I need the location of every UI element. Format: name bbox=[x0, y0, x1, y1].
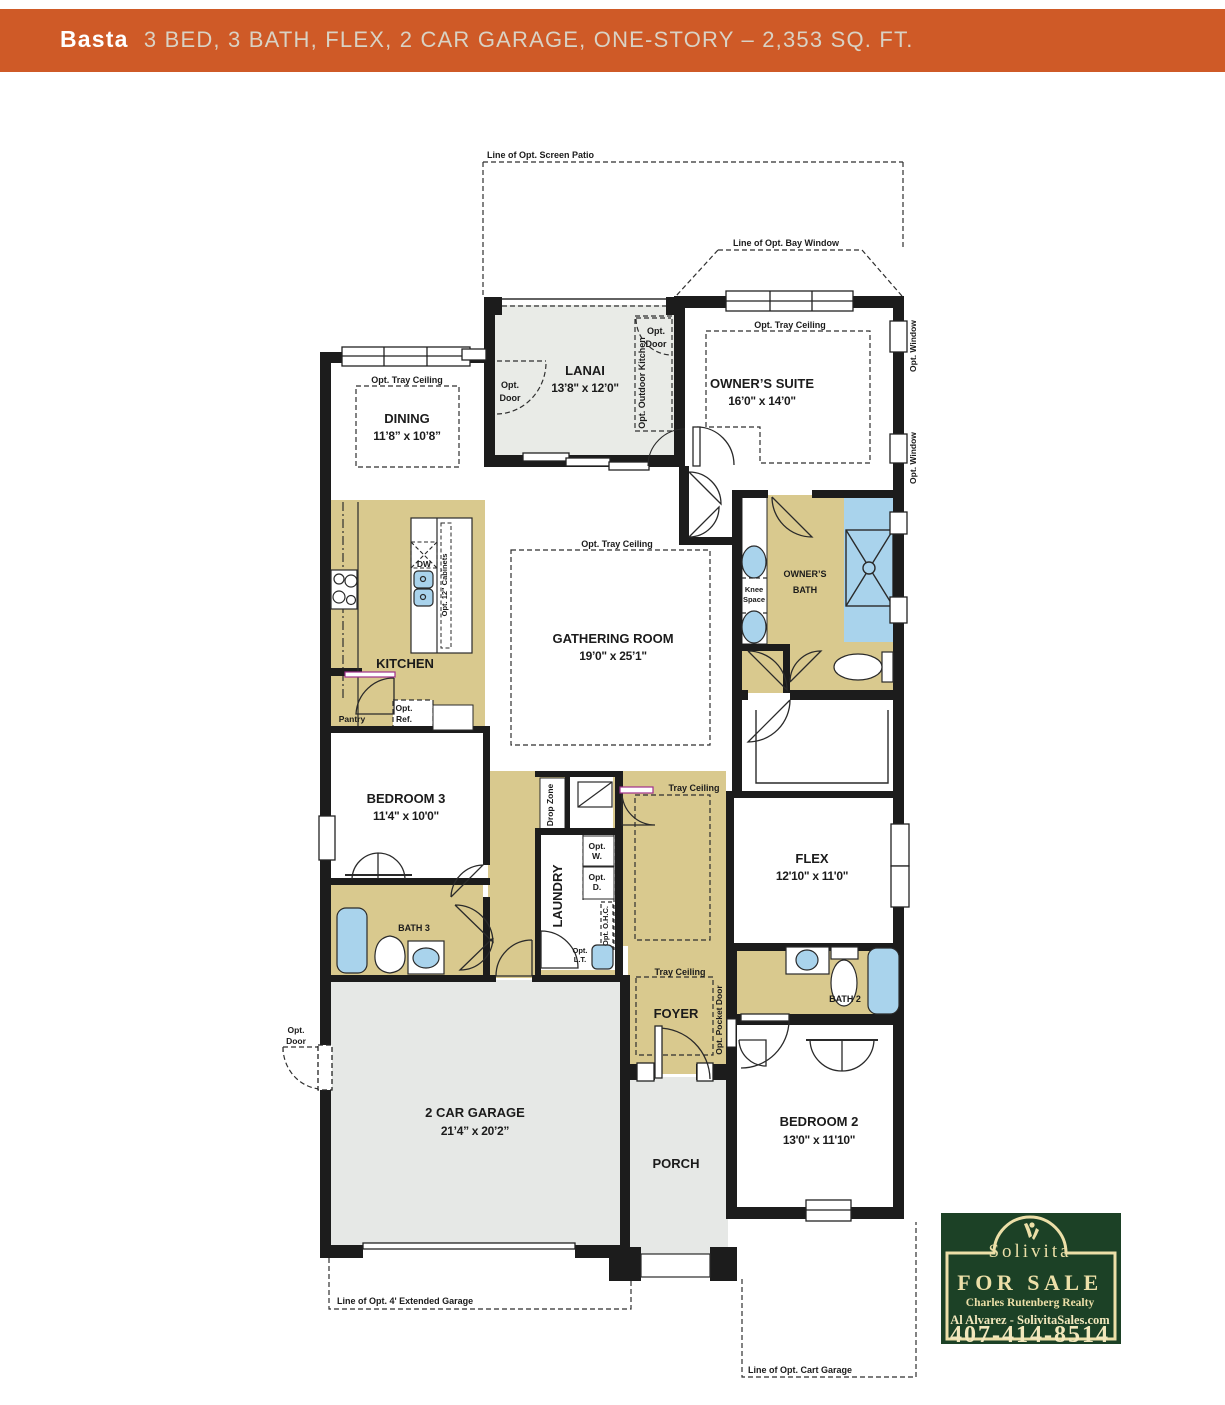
svg-text:Knee: Knee bbox=[745, 585, 763, 594]
svg-text:Opt.: Opt. bbox=[396, 703, 413, 713]
svg-text:Opt. Tray Ceiling: Opt. Tray Ceiling bbox=[371, 375, 443, 385]
svg-text:BEDROOM 3: BEDROOM 3 bbox=[367, 791, 446, 806]
svg-text:DW: DW bbox=[417, 559, 432, 569]
svg-text:Ref.: Ref. bbox=[396, 714, 412, 724]
svg-text:Tray Ceiling: Tray Ceiling bbox=[668, 783, 719, 793]
svg-text:KITCHEN: KITCHEN bbox=[376, 656, 434, 671]
svg-text:L.T.: L.T. bbox=[574, 955, 587, 964]
svg-text:407-414-8514: 407-414-8514 bbox=[950, 1322, 1110, 1344]
svg-text:12'10" x 11'0": 12'10" x 11'0" bbox=[776, 869, 848, 883]
svg-text:Solivita: Solivita bbox=[988, 1241, 1071, 1262]
svg-text:BATH: BATH bbox=[793, 585, 817, 595]
svg-text:Door: Door bbox=[646, 339, 667, 349]
svg-text:FOR SALE: FOR SALE bbox=[957, 1270, 1102, 1295]
svg-text:Opt.: Opt. bbox=[573, 946, 588, 955]
svg-text:Opt.: Opt. bbox=[589, 841, 606, 851]
svg-text:Line of Opt. 4' Extended Garag: Line of Opt. 4' Extended Garage bbox=[337, 1296, 473, 1306]
svg-text:Door: Door bbox=[286, 1036, 307, 1046]
svg-text:Line of Opt. Bay Window: Line of Opt. Bay Window bbox=[733, 238, 840, 248]
svg-text:11'4" x 10'0": 11'4" x 10'0" bbox=[373, 809, 439, 823]
svg-text:Opt. Tray Ceiling: Opt. Tray Ceiling bbox=[581, 539, 653, 549]
svg-text:Opt.: Opt. bbox=[288, 1025, 305, 1035]
svg-text:Opt. O.H.C.: Opt. O.H.C. bbox=[601, 906, 610, 946]
svg-text:Pantry: Pantry bbox=[339, 714, 366, 724]
svg-text:Opt.: Opt. bbox=[647, 326, 665, 336]
svg-text:Line of Opt. Screen Patio: Line of Opt. Screen Patio bbox=[487, 150, 595, 160]
svg-text:OWNER’S: OWNER’S bbox=[783, 569, 826, 579]
svg-text:BATH 2: BATH 2 bbox=[829, 994, 861, 1004]
svg-text:Opt. Pocket Door: Opt. Pocket Door bbox=[714, 985, 724, 1055]
svg-text:FOYER: FOYER bbox=[654, 1006, 699, 1021]
svg-text:Opt. Window: Opt. Window bbox=[908, 432, 918, 484]
svg-text:2 CAR GARAGE: 2 CAR GARAGE bbox=[425, 1105, 525, 1120]
svg-text:Opt.: Opt. bbox=[589, 872, 606, 882]
svg-text:Opt.: Opt. bbox=[501, 380, 519, 390]
svg-text:FLEX: FLEX bbox=[795, 851, 829, 866]
svg-text:13’8" x 12’0": 13’8" x 12’0" bbox=[551, 381, 619, 395]
svg-text:DINING: DINING bbox=[384, 411, 430, 426]
svg-text:LANAI: LANAI bbox=[565, 363, 605, 378]
svg-text:Drop Zone: Drop Zone bbox=[545, 783, 555, 826]
svg-text:W.: W. bbox=[592, 851, 602, 861]
svg-text:Charles Rutenberg Realty: Charles Rutenberg Realty bbox=[966, 1297, 1095, 1309]
svg-text:BEDROOM 2: BEDROOM 2 bbox=[780, 1114, 859, 1129]
svg-text:Opt. Window: Opt. Window bbox=[908, 320, 918, 372]
svg-text:D.: D. bbox=[593, 882, 602, 892]
svg-text:Line of Opt. Cart Garage: Line of Opt. Cart Garage bbox=[748, 1365, 852, 1375]
svg-text:Space: Space bbox=[743, 595, 765, 604]
svg-text:Opt. Outdoor Kitchen: Opt. Outdoor Kitchen bbox=[637, 337, 647, 429]
svg-text:Opt. Tray Ceiling: Opt. Tray Ceiling bbox=[754, 320, 826, 330]
svg-text:Tray Ceiling: Tray Ceiling bbox=[654, 967, 705, 977]
svg-text:Opt. 12" Cabinets: Opt. 12" Cabinets bbox=[440, 554, 449, 617]
svg-text:11’8” x 10’8”: 11’8” x 10’8” bbox=[373, 429, 441, 443]
svg-text:16’0" x 14’0": 16’0" x 14’0" bbox=[728, 394, 796, 408]
svg-text:BATH 3: BATH 3 bbox=[398, 923, 430, 933]
svg-text:19’0" x 25’1": 19’0" x 25’1" bbox=[579, 649, 647, 663]
svg-text:LAUNDRY: LAUNDRY bbox=[550, 864, 565, 927]
svg-text:Door: Door bbox=[500, 393, 521, 403]
svg-text:OWNER’S SUITE: OWNER’S SUITE bbox=[710, 376, 814, 391]
svg-text:21’4” x 20’2”: 21’4” x 20’2” bbox=[441, 1124, 509, 1138]
svg-text:13'0" x 11'10": 13'0" x 11'10" bbox=[783, 1133, 855, 1147]
svg-text:PORCH: PORCH bbox=[653, 1156, 700, 1171]
svg-text:GATHERING ROOM: GATHERING ROOM bbox=[552, 631, 673, 646]
